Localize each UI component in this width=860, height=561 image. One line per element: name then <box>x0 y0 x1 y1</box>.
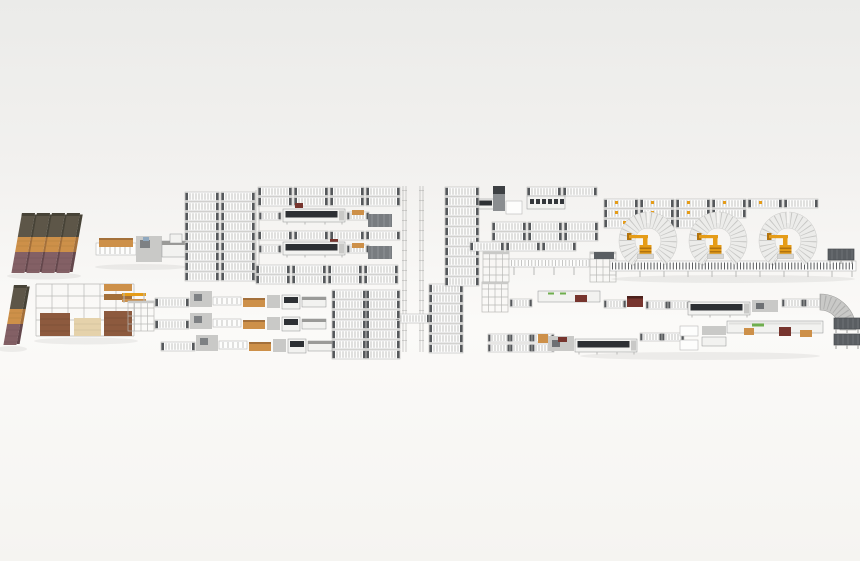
roller-buffer-field-center <box>332 284 463 359</box>
robot-carousel-cells <box>619 211 817 265</box>
cross-transfer-1 <box>368 214 392 227</box>
center-upper-lines <box>256 187 400 284</box>
slat-conveyor-robot-line <box>610 261 856 277</box>
production-line-render <box>0 0 860 561</box>
board-stacks-top-left <box>11 213 83 273</box>
gantry-processing-station <box>468 186 597 214</box>
storage-rack <box>36 284 146 336</box>
slot-machine <box>527 196 565 209</box>
long-white-machine <box>727 321 823 337</box>
bridge-conveyor <box>396 314 430 323</box>
long-machine-dark-hood-3 <box>688 302 750 318</box>
long-machine-dark-hood-4 <box>575 339 637 355</box>
plant-layout-scene <box>0 0 860 561</box>
mesh-platform-lower <box>834 334 860 349</box>
long-machine-dark-hood-1 <box>283 209 345 225</box>
shuttle-rail-track <box>396 186 430 352</box>
robot-cell-3 <box>759 211 817 265</box>
mesh-platform-upper <box>834 318 860 333</box>
long-machine-dark-hood-2 <box>283 242 345 258</box>
roller-buffer-field-left <box>185 190 259 282</box>
lower-right-processing-line <box>488 318 860 355</box>
maroon-unit-1 <box>295 203 303 208</box>
board-stack-bottom-left <box>3 285 30 345</box>
parallel-processing-lines <box>128 291 332 353</box>
processing-line-3 <box>161 335 332 353</box>
processing-line-2 <box>155 313 326 331</box>
cross-transfer-2 <box>368 246 392 259</box>
maroon-machine <box>627 296 643 307</box>
processing-line-1 <box>155 291 326 309</box>
stack-feed-station <box>96 234 186 262</box>
elevated-conveyor-to-robots <box>483 252 616 282</box>
white-machine-green-marks <box>538 291 600 302</box>
